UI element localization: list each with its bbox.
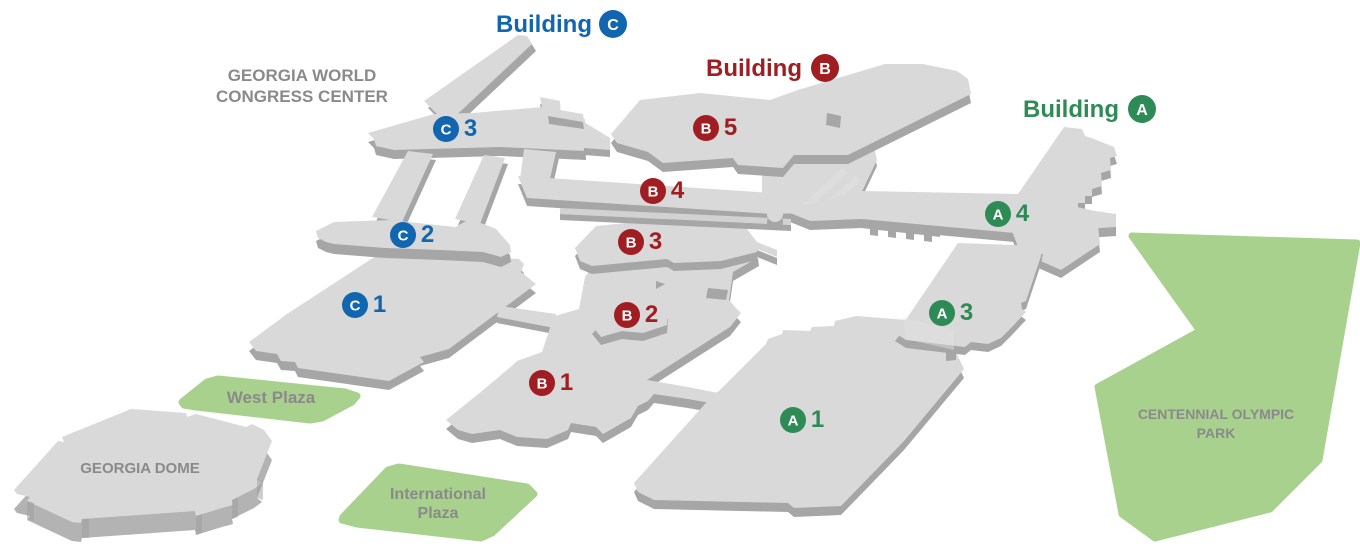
svg-text:1: 1 (811, 406, 824, 433)
svg-text:2: 2 (645, 301, 658, 328)
svg-text:4: 4 (671, 177, 685, 204)
svg-text:A: A (1136, 102, 1148, 119)
svg-text:2: 2 (421, 221, 434, 248)
svg-text:3: 3 (649, 228, 662, 255)
svg-text:Building: Building (706, 55, 802, 82)
svg-text:A: A (993, 206, 1004, 223)
svg-text:1: 1 (560, 369, 573, 396)
svg-text:3: 3 (464, 115, 477, 142)
svg-text:West Plaza: West Plaza (227, 388, 316, 407)
svg-text:International: International (390, 486, 486, 503)
svg-text:Building: Building (496, 11, 592, 38)
svg-text:B: B (819, 61, 831, 78)
svg-text:PARK: PARK (1197, 425, 1236, 441)
svg-text:Plaza: Plaza (418, 505, 459, 522)
svg-text:A: A (937, 305, 948, 322)
svg-text:C: C (441, 121, 452, 138)
svg-text:C: C (398, 227, 409, 244)
svg-text:1: 1 (373, 291, 386, 318)
svg-text:GEORGIA WORLD: GEORGIA WORLD (228, 66, 377, 85)
svg-text:B: B (626, 234, 637, 251)
svg-text:Building: Building (1023, 96, 1119, 123)
svg-text:A: A (788, 412, 799, 429)
svg-text:4: 4 (1016, 200, 1030, 227)
svg-text:B: B (648, 183, 659, 200)
svg-text:GEORGIA DOME: GEORGIA DOME (80, 460, 199, 477)
svg-text:CENTENNIAL OLYMPIC: CENTENNIAL OLYMPIC (1138, 406, 1294, 422)
svg-text:3: 3 (960, 299, 973, 326)
svg-text:5: 5 (724, 114, 737, 141)
svg-text:B: B (537, 375, 548, 392)
svg-text:C: C (350, 297, 361, 314)
svg-text:C: C (607, 17, 619, 34)
svg-text:B: B (622, 307, 633, 324)
svg-text:CONGRESS CENTER: CONGRESS CENTER (216, 87, 388, 106)
svg-text:B: B (701, 120, 712, 137)
